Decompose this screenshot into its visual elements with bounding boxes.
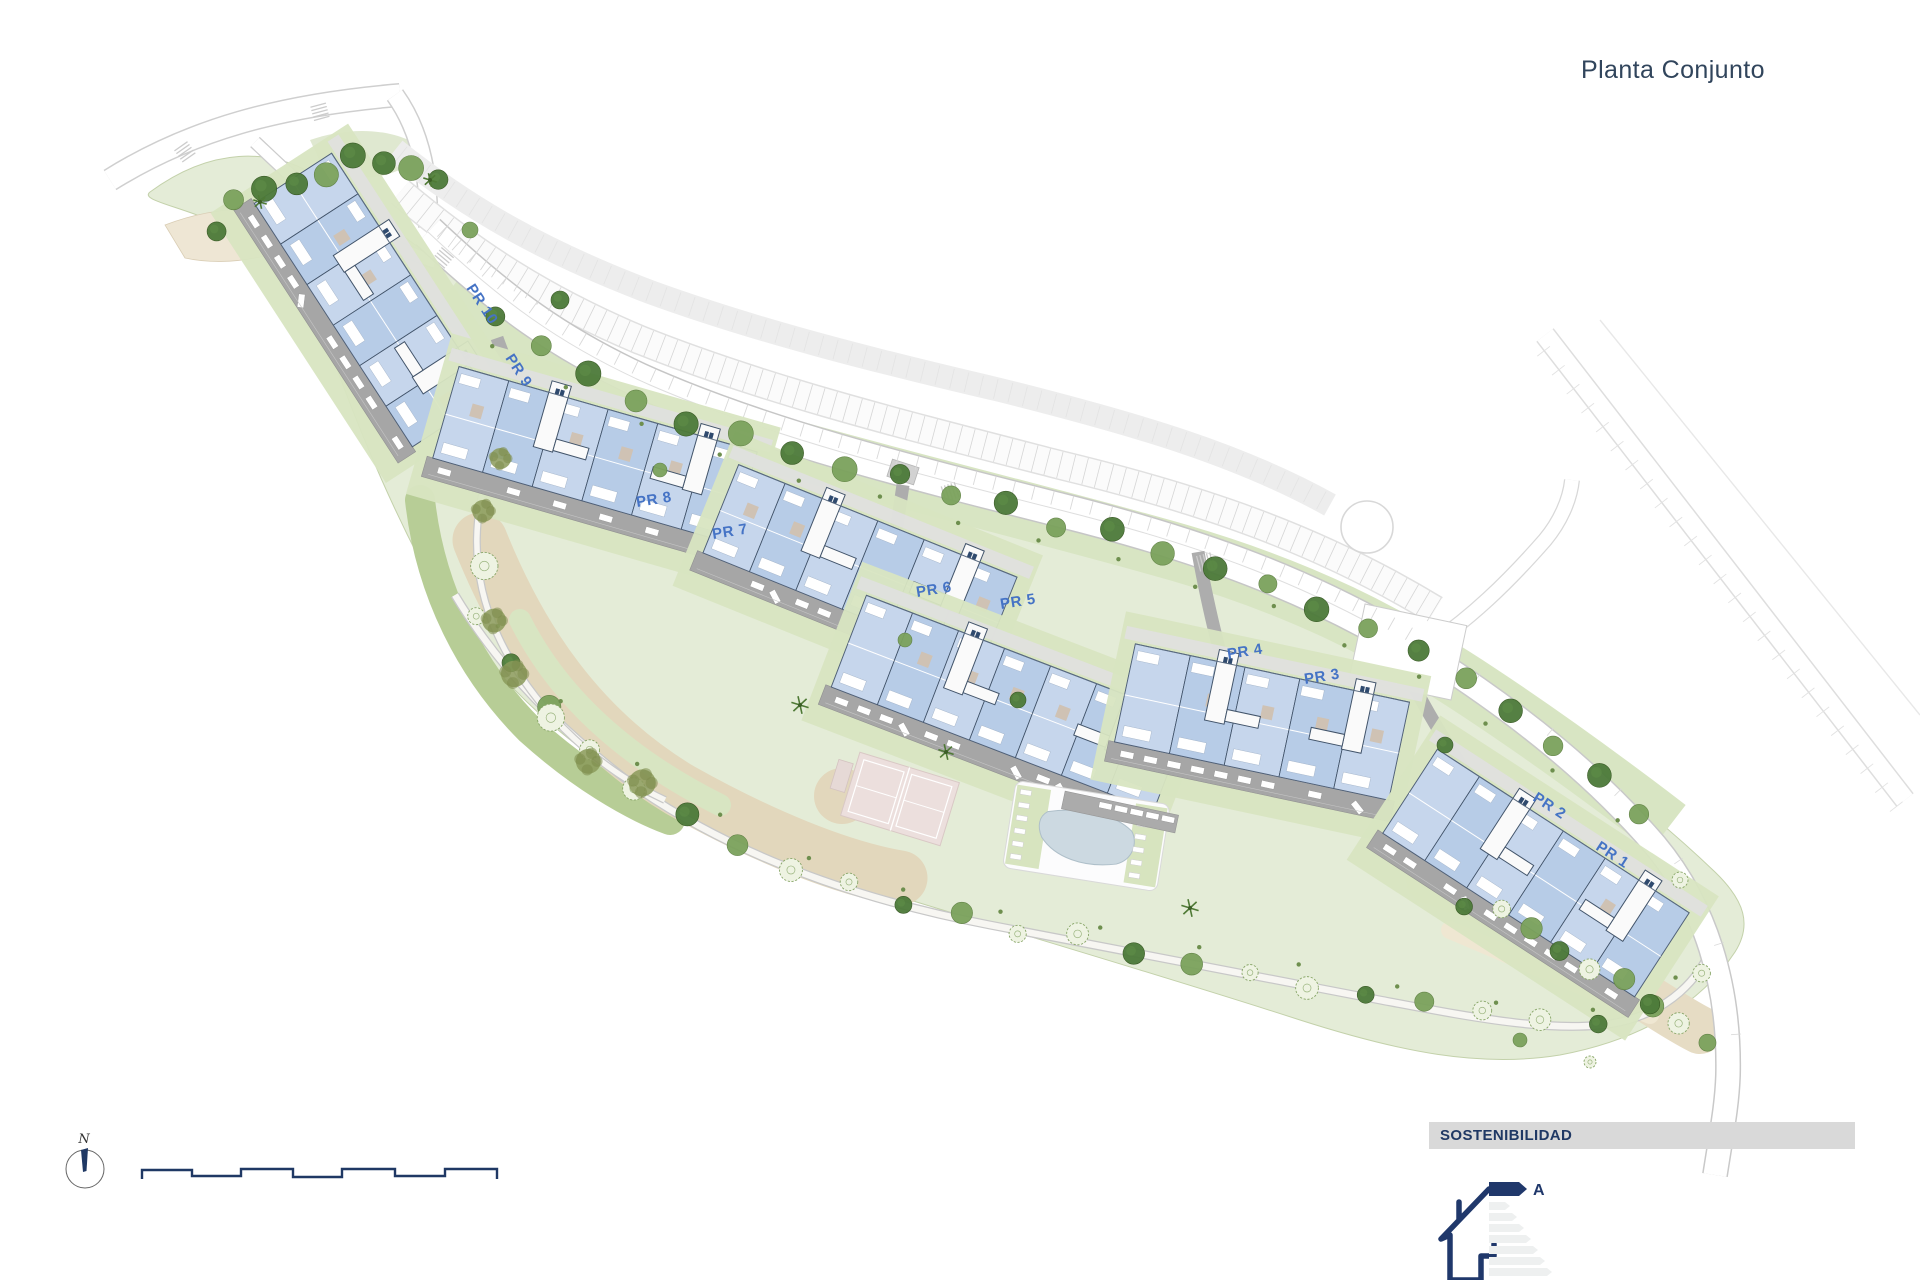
section-profile-line <box>142 1169 497 1179</box>
site-plan-drawing: PR 10 PR 9 PR 8 PR 7 PR 6 PR 5 PR 4 PR 3… <box>0 0 1920 1280</box>
energy-rating-icon: A <box>1437 1172 1607 1280</box>
energy-class-letter: A <box>1533 1182 1545 1199</box>
site-plan-page: Planta Conjunto <box>0 0 1920 1280</box>
compass-needle-icon <box>81 1148 88 1172</box>
energy-scale-bars <box>1489 1202 1552 1276</box>
sustainability-heading: SOSTENIBILIDAD <box>1429 1122 1855 1149</box>
energy-class-arrow-icon <box>1489 1182 1527 1196</box>
north-compass: N <box>66 1132 104 1188</box>
compass-north-label: N <box>77 1132 90 1147</box>
sustainability-panel: SOSTENIBILIDAD A <box>1429 1122 1855 1149</box>
energy-house-icon <box>1441 1189 1494 1280</box>
